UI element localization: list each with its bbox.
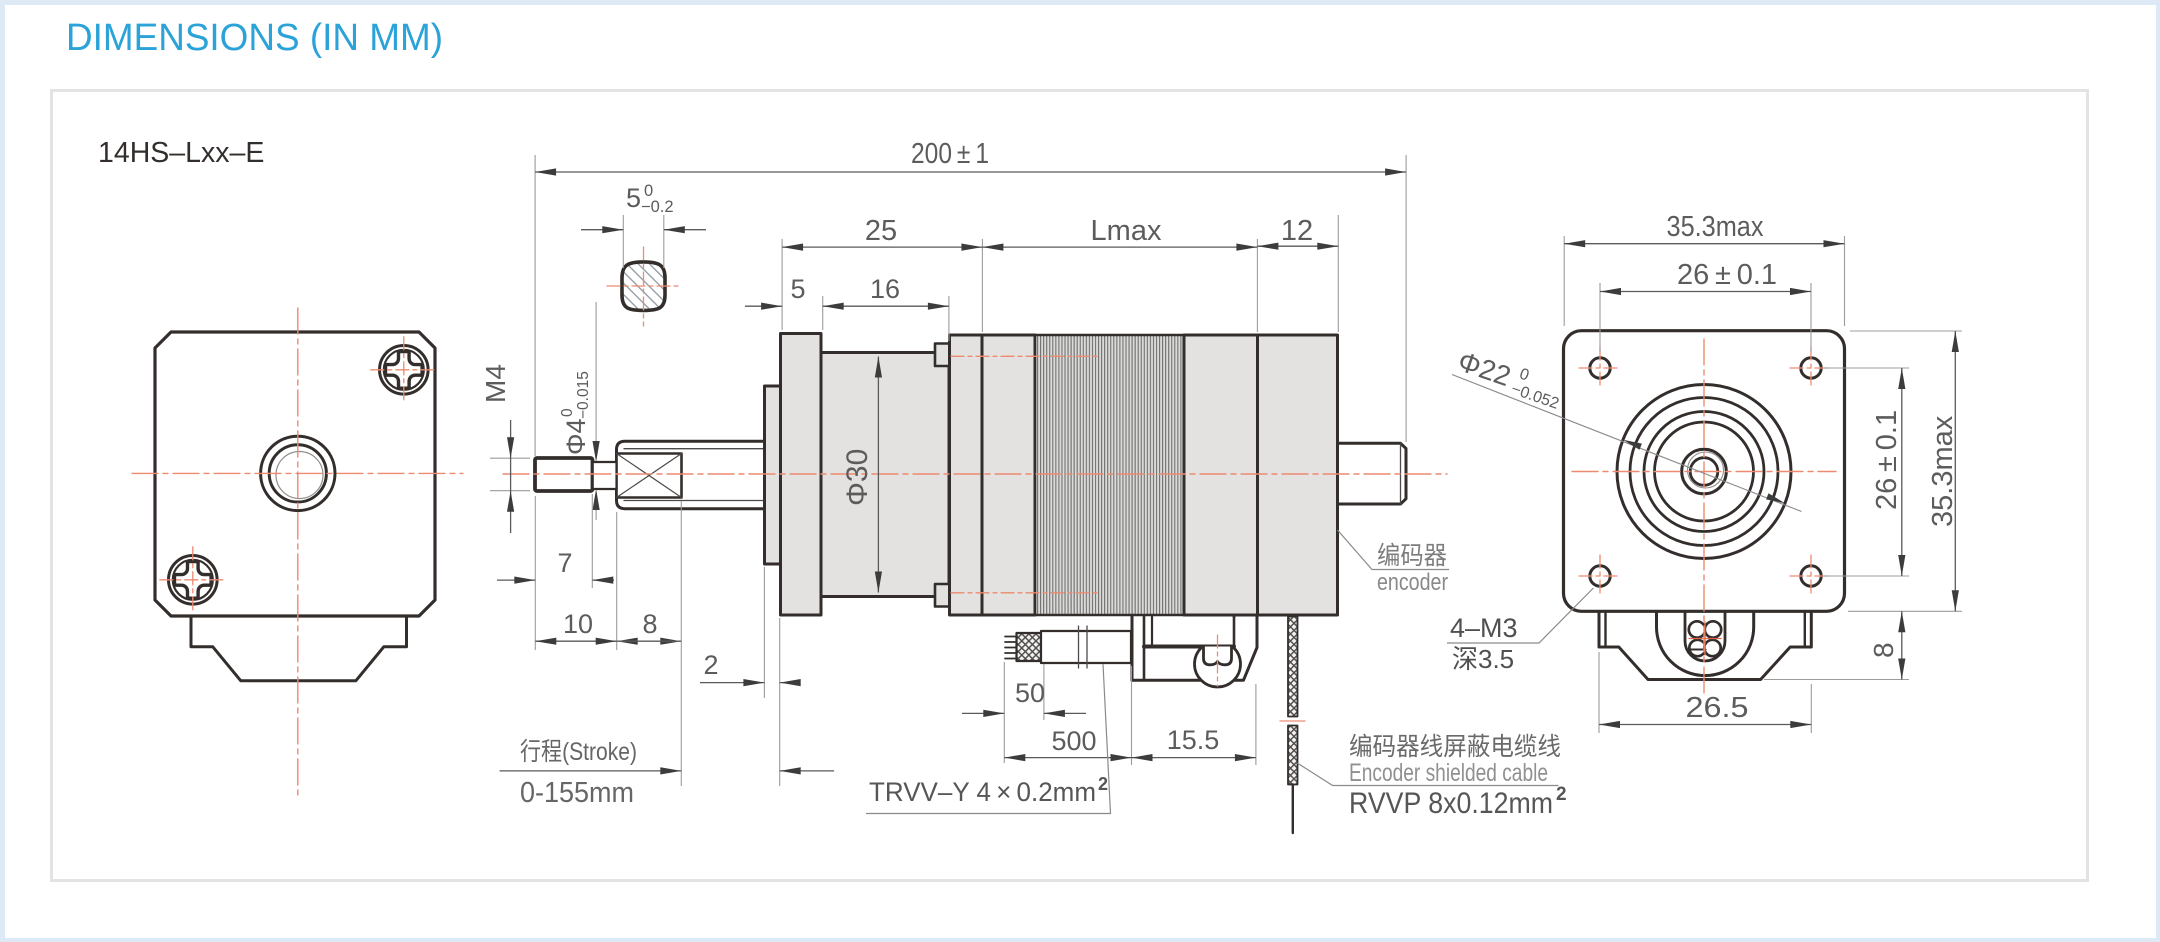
svg-text:0: 0 bbox=[559, 408, 576, 417]
svg-text:编码器线屏蔽电缆线: 编码器线屏蔽电缆线 bbox=[1349, 733, 1561, 761]
svg-text:15.5: 15.5 bbox=[1167, 725, 1220, 755]
svg-text:编码器: 编码器 bbox=[1377, 542, 1447, 570]
svg-text:深3.5: 深3.5 bbox=[1452, 644, 1514, 674]
svg-text:35.3max: 35.3max bbox=[1667, 211, 1764, 243]
svg-text:10: 10 bbox=[563, 609, 593, 639]
svg-text:25: 25 bbox=[865, 215, 897, 247]
svg-text:500: 500 bbox=[1051, 726, 1096, 756]
svg-text:26.5: 26.5 bbox=[1686, 692, 1749, 724]
svg-text:12: 12 bbox=[1281, 215, 1313, 247]
svg-text:4–M3: 4–M3 bbox=[1450, 613, 1518, 643]
svg-text:−0.2: −0.2 bbox=[641, 198, 674, 216]
svg-text:0-155mm: 0-155mm bbox=[520, 777, 634, 809]
svg-text:Φ30: Φ30 bbox=[841, 449, 874, 506]
svg-text:5: 5 bbox=[626, 183, 641, 213]
svg-text:35.3max: 35.3max bbox=[1927, 415, 1959, 527]
svg-text:RVVP 8x0.12mm: RVVP 8x0.12mm bbox=[1349, 787, 1553, 820]
svg-text:2: 2 bbox=[1556, 784, 1567, 805]
svg-text:50: 50 bbox=[1015, 678, 1045, 708]
svg-text:行程(Stroke): 行程(Stroke) bbox=[520, 738, 637, 766]
svg-text:7: 7 bbox=[557, 548, 572, 578]
svg-text:26 ± 0.1: 26 ± 0.1 bbox=[1677, 259, 1777, 291]
svg-text:TRVV–Y 4 × 0.2mm: TRVV–Y 4 × 0.2mm bbox=[869, 777, 1096, 807]
svg-text:8: 8 bbox=[1868, 642, 1899, 658]
svg-text:200 ± 1: 200 ± 1 bbox=[911, 138, 989, 170]
svg-text:encoder: encoder bbox=[1377, 569, 1448, 596]
svg-text:14HS–Lxx–E: 14HS–Lxx–E bbox=[98, 137, 264, 169]
svg-text:Φ4: Φ4 bbox=[561, 418, 591, 455]
svg-text:2: 2 bbox=[703, 650, 718, 680]
svg-text:M4: M4 bbox=[480, 364, 511, 403]
svg-text:5: 5 bbox=[790, 274, 805, 304]
svg-text:8: 8 bbox=[642, 609, 657, 639]
svg-text:16: 16 bbox=[870, 274, 900, 304]
svg-text:Encoder shielded cable: Encoder shielded cable bbox=[1349, 759, 1548, 787]
svg-text:Lmax: Lmax bbox=[1091, 215, 1162, 247]
svg-text:2: 2 bbox=[1098, 774, 1108, 794]
svg-text:26 ± 0.1: 26 ± 0.1 bbox=[1871, 410, 1903, 510]
svg-text:DIMENSIONS (IN MM): DIMENSIONS (IN MM) bbox=[66, 17, 443, 59]
svg-text:−0.015: −0.015 bbox=[575, 371, 592, 419]
